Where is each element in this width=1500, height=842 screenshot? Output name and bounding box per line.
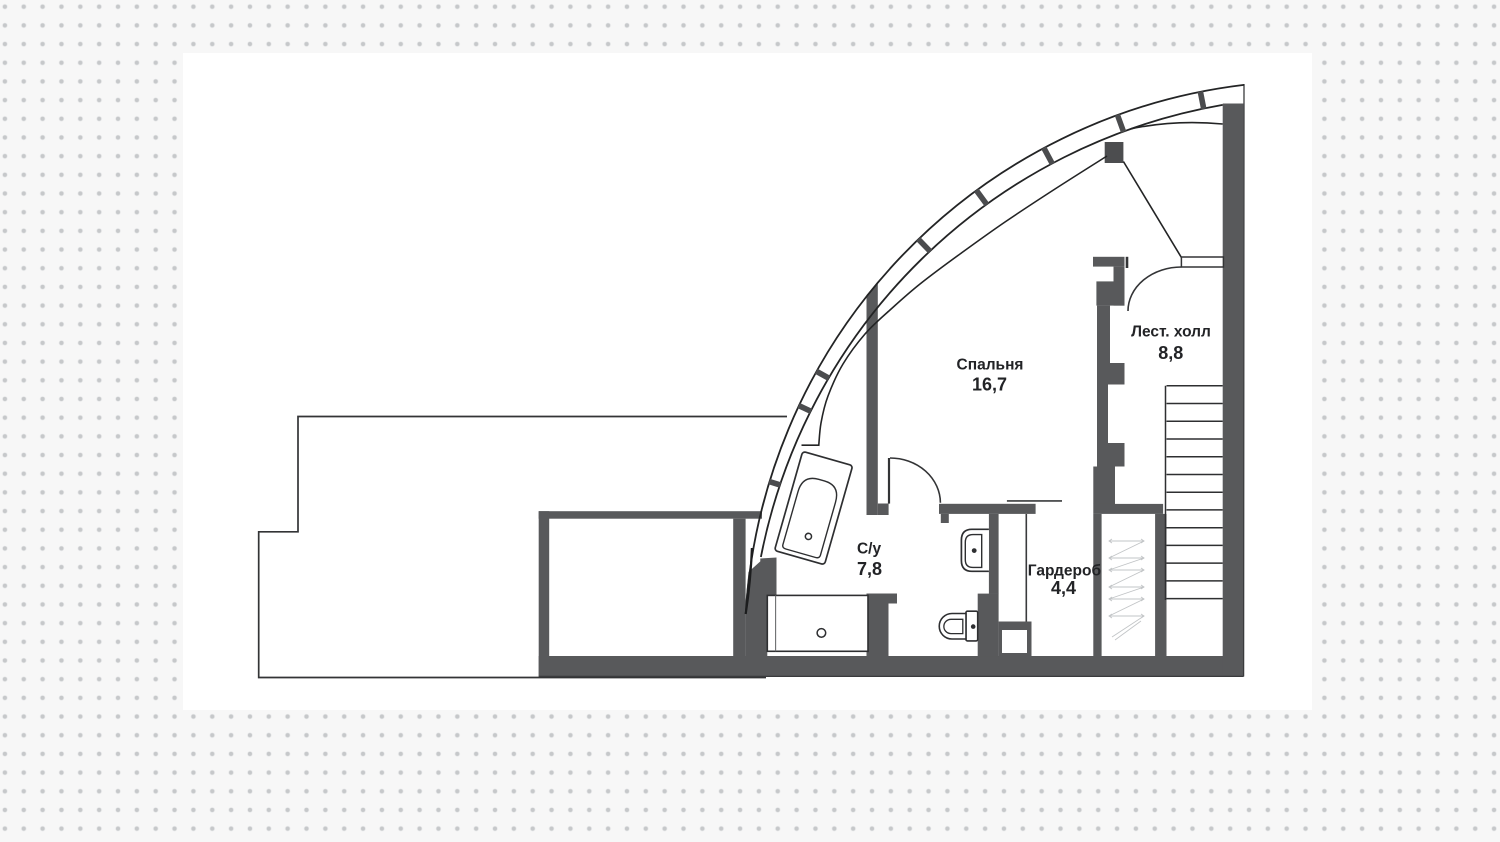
svg-text:8,8: 8,8 bbox=[1158, 343, 1183, 363]
svg-text:С/у: С/у bbox=[857, 541, 882, 558]
svg-text:Лест. холл: Лест. холл bbox=[1131, 324, 1211, 341]
svg-text:Спальня: Спальня bbox=[957, 357, 1024, 374]
svg-text:Гардероб: Гардероб bbox=[1028, 563, 1101, 580]
svg-text:16,7: 16,7 bbox=[972, 375, 1007, 395]
svg-text:7,8: 7,8 bbox=[857, 559, 882, 579]
svg-text:4,4: 4,4 bbox=[1051, 578, 1076, 598]
